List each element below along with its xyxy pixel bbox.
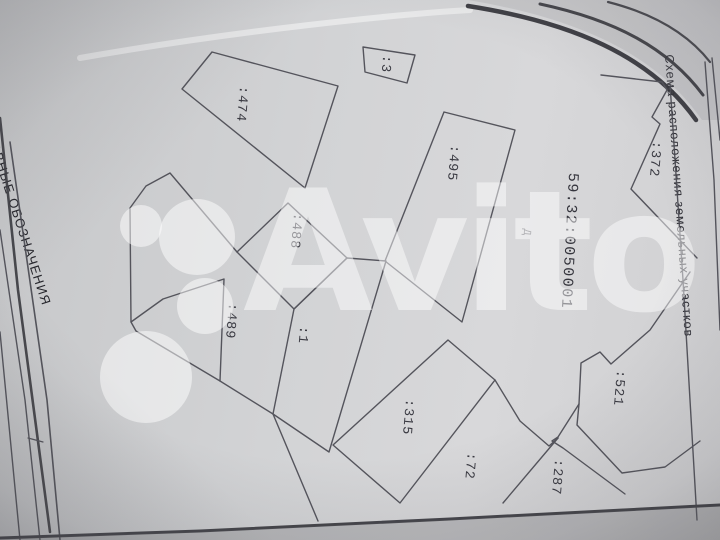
avito-watermark-text: Avito bbox=[243, 168, 695, 336]
avito-logo-circle bbox=[120, 205, 162, 247]
avito-logo-circle bbox=[100, 331, 192, 423]
photo-of-cadastral-scheme: Схема расположения земельных участков УС… bbox=[0, 0, 720, 540]
avito-logo-circle bbox=[159, 199, 235, 275]
avito-logo-circle bbox=[177, 278, 233, 334]
